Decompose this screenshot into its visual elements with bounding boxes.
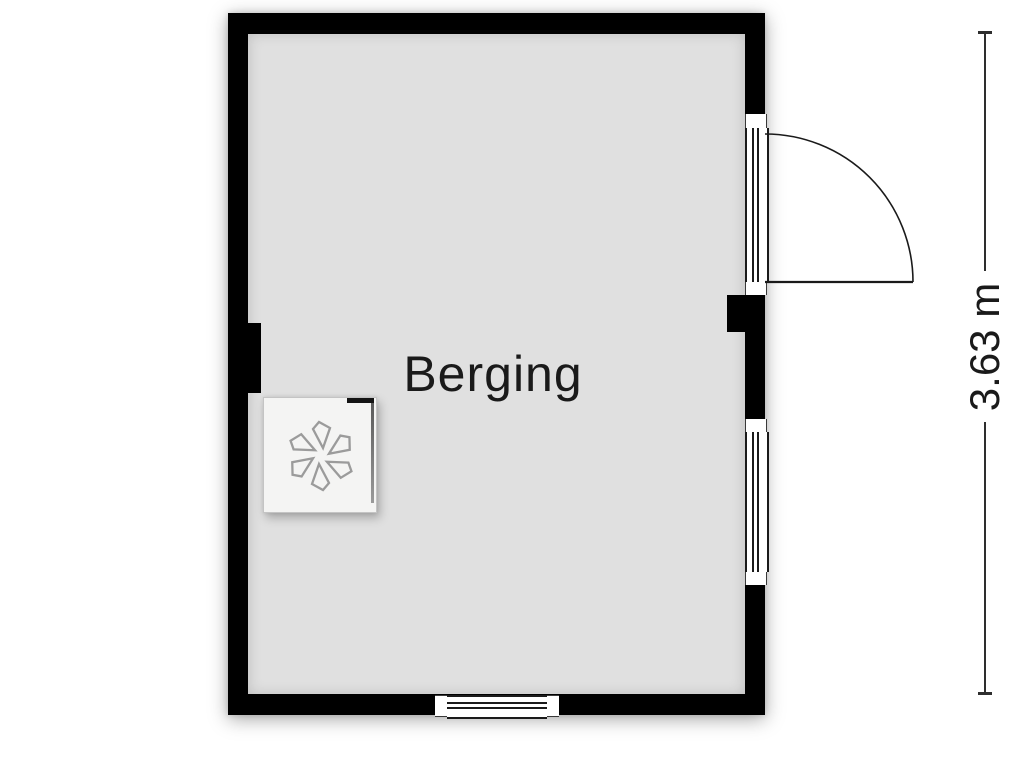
dimension-tick-top <box>978 31 992 34</box>
wall-left <box>228 13 248 715</box>
dimension-line-lower <box>984 422 986 695</box>
fan-icon <box>283 418 359 494</box>
wall-right-lower <box>745 585 765 715</box>
window-right-cap-bottom <box>745 572 767 585</box>
door-right <box>745 128 769 282</box>
window-mullion <box>447 707 547 709</box>
window-mullion <box>752 432 754 572</box>
floorplan-canvas: Berging 3.63 m <box>0 0 1024 768</box>
dimension-line-upper <box>984 33 986 271</box>
window-bottom-cap-left <box>435 695 447 717</box>
window-bottom-cap-right <box>547 695 559 717</box>
window-bottom <box>447 695 547 719</box>
door-frame-cap-bottom <box>745 282 767 295</box>
dimension-label: 3.63 m <box>961 283 1009 411</box>
window-right <box>745 432 769 572</box>
wall-top <box>228 13 765 34</box>
ventilation-unit-flue <box>347 398 374 403</box>
ventilation-unit-edge <box>371 403 374 503</box>
window-right-cap-top <box>745 419 767 432</box>
door-mullion <box>752 128 754 282</box>
room-label: Berging <box>403 345 582 403</box>
window-mullion <box>447 702 547 704</box>
door-frame-cap-top <box>745 114 767 128</box>
ventilation-unit <box>263 397 377 513</box>
window-mullion <box>757 432 759 572</box>
wall-pier-right <box>727 295 765 332</box>
wall-pier-left <box>248 323 261 393</box>
wall-right-upper <box>745 13 765 114</box>
dimension-tick-bottom <box>978 692 992 695</box>
door-mullion <box>757 128 759 282</box>
